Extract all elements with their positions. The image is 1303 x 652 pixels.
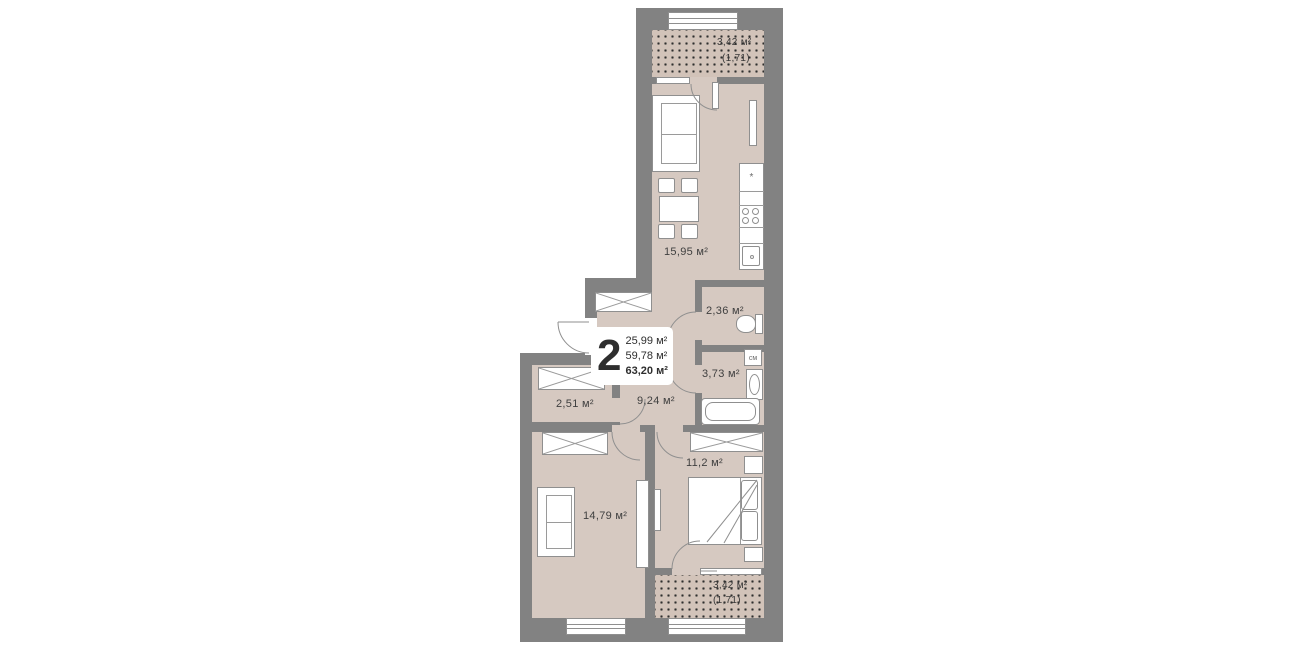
balcony-bottom-doorway bbox=[672, 568, 700, 575]
tall-cabinet-icon bbox=[636, 480, 649, 568]
toilet-bowl-icon bbox=[736, 315, 756, 333]
wardrobe-box-icon bbox=[595, 292, 652, 312]
room-area-label-wc: 2,36 м² bbox=[706, 305, 744, 317]
wardrobe-box-icon bbox=[690, 432, 763, 452]
counter-divider bbox=[739, 205, 764, 206]
chair-icon bbox=[658, 224, 675, 239]
washing-machine-label: см bbox=[745, 355, 761, 362]
balcony-top-door-leaf bbox=[712, 82, 719, 109]
room-area-label-wardrobe: 2,51 м² bbox=[556, 398, 594, 410]
bedroom-doorway bbox=[655, 425, 683, 432]
balcony-bottom-reduced-label: (1,71) bbox=[713, 595, 741, 606]
sink-icon bbox=[742, 246, 760, 266]
tv-icon bbox=[654, 489, 661, 531]
living-area-value: 25,99 м² bbox=[625, 334, 667, 349]
stove-burner-icon bbox=[752, 208, 759, 215]
counter-divider bbox=[739, 191, 764, 192]
bathtub-icon bbox=[701, 398, 760, 425]
apartment-info-box: 2 25,99 м² 59,78 м² 63,20 м² bbox=[591, 327, 673, 385]
living-room-doorway bbox=[612, 425, 640, 432]
room-area-label-kitchen: 15,95 м² bbox=[664, 246, 708, 258]
wardrobe-box-icon bbox=[542, 432, 608, 455]
washbasin-icon bbox=[746, 369, 763, 400]
pillow-icon bbox=[741, 480, 758, 510]
dining-table-icon bbox=[659, 196, 699, 222]
chair-icon bbox=[681, 178, 698, 193]
sofa-icon bbox=[652, 95, 700, 172]
bathroom-doorway bbox=[695, 365, 702, 393]
info-areas: 25,99 м² 59,78 м² 63,20 м² bbox=[625, 334, 667, 379]
wardrobe-room-doorway bbox=[612, 398, 620, 422]
window-top-icon bbox=[668, 12, 738, 30]
stove-burner-icon bbox=[742, 217, 749, 224]
kitchen-hall-passage bbox=[652, 280, 695, 292]
nightstand-icon bbox=[744, 547, 763, 562]
bathtub-inner bbox=[705, 402, 756, 421]
sofa-seat bbox=[661, 103, 697, 164]
tv-icon bbox=[749, 100, 757, 146]
nightstand-icon bbox=[744, 456, 763, 474]
window-bottom-left-icon bbox=[566, 618, 626, 635]
sofa-icon bbox=[537, 487, 575, 557]
room-area-label-hallway: 9,24 м² bbox=[637, 395, 675, 407]
pillow-icon bbox=[741, 511, 758, 541]
balcony-bottom-sill bbox=[700, 568, 762, 575]
room-area-label-living-room: 14,79 м² bbox=[583, 510, 627, 522]
counter-divider bbox=[739, 243, 764, 244]
balcony-bottom-area-label: 3,42 м² bbox=[713, 580, 748, 591]
counter-divider bbox=[739, 227, 764, 228]
room-count: 2 bbox=[597, 334, 621, 378]
balcony-top-reduced-label: (1,71) bbox=[722, 53, 750, 64]
fridge-icon: * bbox=[740, 172, 763, 183]
washbasin-bowl bbox=[749, 374, 760, 395]
stove-burner-icon bbox=[742, 208, 749, 215]
total-area-value: 63,20 м² bbox=[625, 364, 667, 379]
floor-plan: * см bbox=[0, 0, 1303, 652]
area-without-balcony-value: 59,78 м² bbox=[625, 349, 667, 364]
room-area-label-bedroom: 11,2 м² bbox=[686, 457, 723, 469]
sink-drain bbox=[750, 255, 754, 259]
window-bottom-right-icon bbox=[668, 618, 746, 635]
stove-burner-icon bbox=[752, 217, 759, 224]
washing-machine-icon: см bbox=[744, 349, 762, 366]
balcony-top-sill bbox=[656, 77, 690, 84]
chair-icon bbox=[658, 178, 675, 193]
toilet-tank-icon bbox=[755, 314, 763, 334]
wc-doorway bbox=[695, 312, 702, 340]
room-area-label-bathroom: 3,73 м² bbox=[702, 368, 740, 380]
chair-icon bbox=[681, 224, 698, 239]
balcony-top-area-label: 3,42 м² bbox=[717, 37, 752, 48]
sofa-seat bbox=[546, 495, 572, 549]
